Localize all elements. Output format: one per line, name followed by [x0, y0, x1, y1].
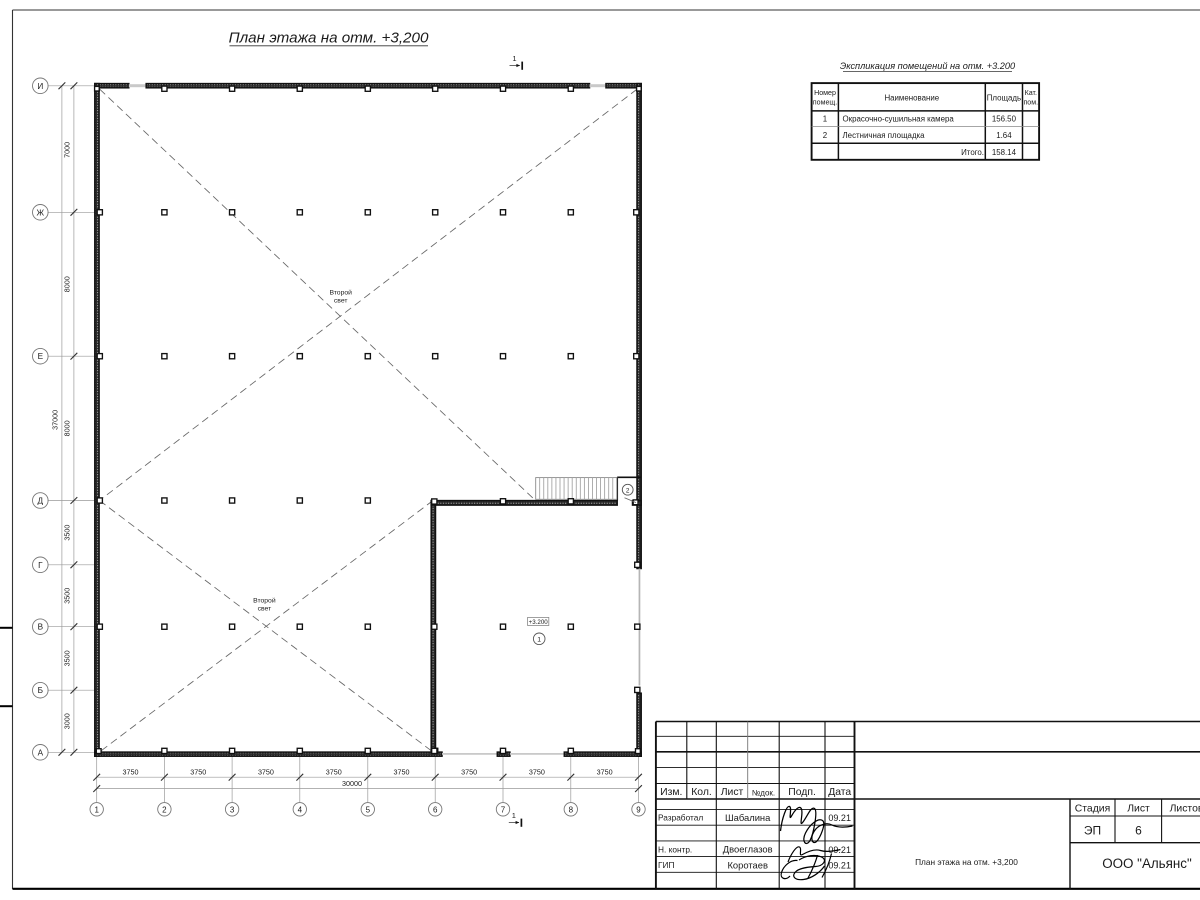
- svg-text:5: 5: [366, 805, 371, 814]
- svg-text:Окрасочно-сушильная камера: Окрасочно-сушильная камера: [843, 115, 955, 124]
- svg-text:3750: 3750: [529, 768, 545, 777]
- svg-text:3750: 3750: [597, 768, 613, 777]
- svg-text:6: 6: [433, 805, 438, 814]
- svg-text:3750: 3750: [258, 768, 274, 777]
- svg-text:ГИП: ГИП: [658, 860, 674, 870]
- svg-text:3500: 3500: [63, 525, 72, 541]
- svg-text:Изм.: Изм.: [660, 787, 682, 798]
- svg-text:Разработал: Разработал: [658, 813, 703, 823]
- svg-text:1: 1: [512, 54, 516, 63]
- svg-text:Шабалина: Шабалина: [725, 812, 771, 823]
- svg-text:Наименование: Наименование: [884, 93, 939, 102]
- svg-text:Второй: Второй: [329, 289, 352, 297]
- svg-text:158.14: 158.14: [992, 148, 1017, 157]
- svg-text:3750: 3750: [123, 768, 139, 777]
- svg-text:8000: 8000: [63, 420, 72, 436]
- svg-text:2: 2: [626, 487, 630, 494]
- svg-text:Лист: Лист: [1127, 804, 1150, 815]
- svg-text:Стадия: Стадия: [1075, 804, 1110, 815]
- svg-text:Экспликация помещений на отм.: Экспликация помещений на отм. +3.200: [840, 61, 1016, 71]
- svg-text:Площадь: Площадь: [987, 93, 1021, 102]
- svg-text:1.64: 1.64: [996, 131, 1012, 140]
- svg-text:свет: свет: [258, 606, 272, 613]
- svg-text:ЭП: ЭП: [1084, 824, 1101, 838]
- svg-text:Ж: Ж: [37, 208, 45, 217]
- svg-text:№док.: №док.: [752, 788, 775, 797]
- svg-text:Подп.: Подп.: [788, 787, 816, 798]
- svg-text:План этажа на отм. +3,200: План этажа на отм. +3,200: [915, 857, 1018, 867]
- svg-text:3750: 3750: [394, 768, 410, 777]
- svg-text:пом.: пом.: [1023, 99, 1038, 107]
- svg-text:30000: 30000: [342, 779, 362, 788]
- svg-text:156.50: 156.50: [992, 115, 1017, 124]
- svg-text:Двоеглазов: Двоеглазов: [723, 844, 773, 855]
- svg-text:3500: 3500: [63, 650, 72, 666]
- svg-text:Дата: Дата: [828, 787, 851, 798]
- svg-text:8000: 8000: [63, 276, 72, 292]
- svg-text:План этажа на отм. +3,200: План этажа на отм. +3,200: [229, 30, 429, 47]
- svg-text:3: 3: [230, 805, 235, 814]
- svg-text:Н. контр.: Н. контр.: [658, 844, 692, 854]
- svg-text:Лестничная площадка: Лестничная площадка: [843, 131, 926, 140]
- svg-text:Лист: Лист: [721, 787, 744, 798]
- svg-text:+3.200: +3.200: [529, 619, 549, 626]
- svg-text:Б: Б: [38, 686, 43, 695]
- svg-text:09.21: 09.21: [828, 861, 851, 871]
- svg-text:Второй: Второй: [253, 597, 276, 605]
- svg-text:7: 7: [501, 805, 506, 814]
- svg-text:3750: 3750: [190, 768, 206, 777]
- svg-text:И: И: [37, 82, 43, 91]
- svg-text:9: 9: [636, 805, 641, 814]
- svg-text:Листов: Листов: [1170, 804, 1200, 815]
- svg-text:09.21: 09.21: [828, 813, 851, 823]
- svg-text:помещ.: помещ.: [813, 99, 837, 107]
- svg-text:ООО "Альянс": ООО "Альянс": [1102, 856, 1192, 871]
- svg-text:Коротаев: Коротаев: [727, 859, 768, 870]
- svg-text:37000: 37000: [51, 410, 60, 430]
- svg-text:Номер: Номер: [814, 89, 836, 97]
- svg-text:Е: Е: [38, 352, 44, 361]
- svg-text:1: 1: [537, 637, 541, 644]
- svg-text:3000: 3000: [63, 713, 72, 729]
- svg-text:Г: Г: [38, 561, 43, 570]
- svg-text:6: 6: [1135, 824, 1142, 838]
- svg-text:2: 2: [162, 805, 167, 814]
- svg-text:А: А: [38, 748, 44, 757]
- svg-text:3750: 3750: [461, 768, 477, 777]
- svg-text:1: 1: [823, 115, 827, 124]
- svg-text:7000: 7000: [63, 142, 72, 158]
- svg-text:Кол.: Кол.: [691, 787, 712, 798]
- svg-text:Д: Д: [38, 497, 44, 506]
- svg-text:свет: свет: [334, 298, 348, 305]
- svg-text:Итого.: Итого.: [961, 148, 984, 157]
- svg-text:В: В: [38, 623, 44, 632]
- svg-text:1: 1: [94, 805, 99, 814]
- svg-text:3500: 3500: [63, 588, 72, 604]
- svg-text:4: 4: [298, 805, 303, 814]
- svg-text:8: 8: [569, 805, 574, 814]
- svg-text:Кат.: Кат.: [1025, 89, 1037, 97]
- svg-text:3750: 3750: [326, 768, 342, 777]
- svg-text:2: 2: [823, 131, 827, 140]
- svg-text:1: 1: [512, 811, 516, 820]
